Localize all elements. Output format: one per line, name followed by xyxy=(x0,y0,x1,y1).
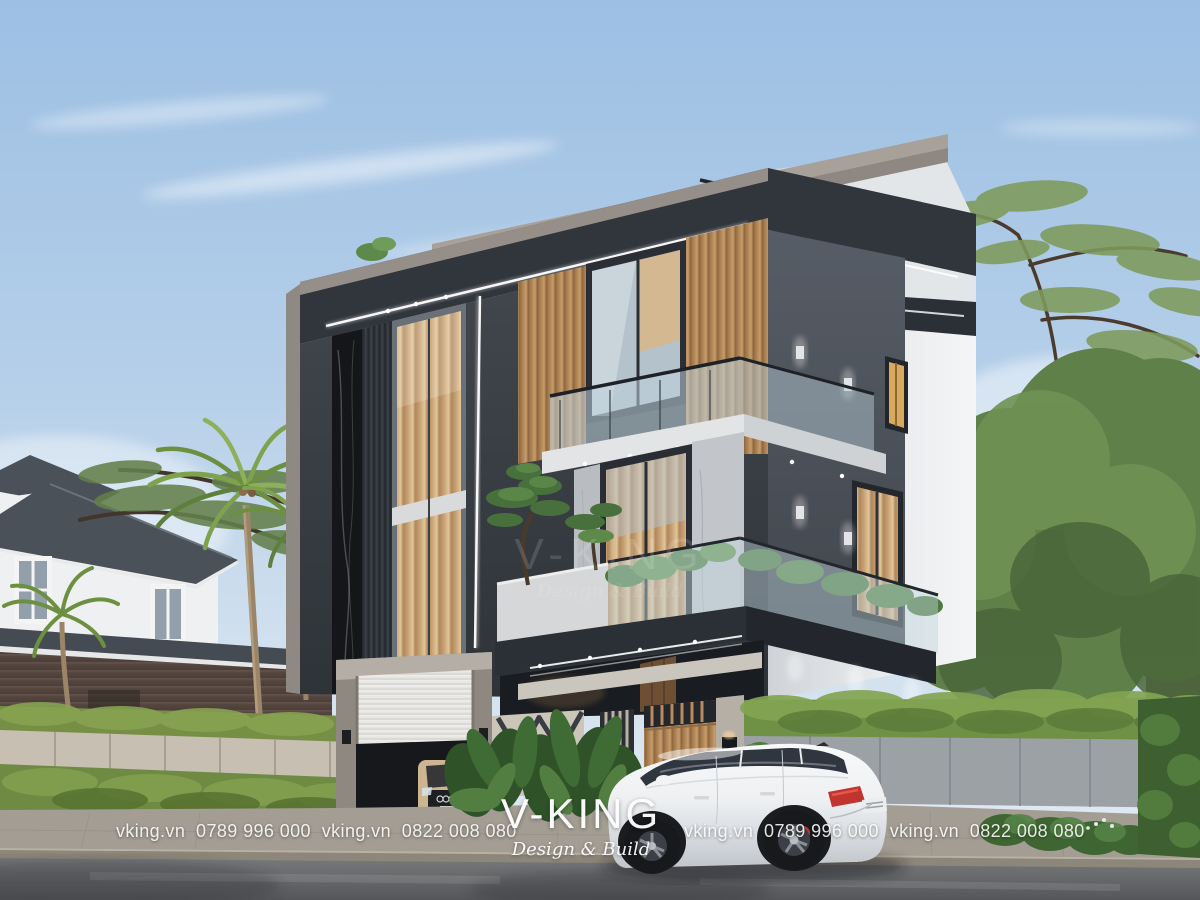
watermark-center-title: V-KING xyxy=(497,530,723,580)
architectural-render: vking.vn 0789 996 000 vking.vn 0822 008 … xyxy=(0,0,1200,900)
vking-logo-subtitle: Design & Build xyxy=(468,839,694,860)
watermark-center: V-KING Design & Build xyxy=(497,530,723,602)
watermark-center-subtitle: Design & Build xyxy=(497,580,723,602)
neighbor-window xyxy=(150,584,186,644)
vertical-led-strip xyxy=(475,296,480,648)
garage-roller-door xyxy=(356,670,474,748)
watermark-bottom-right: vking.vn 0789 996 000 vking.vn 0822 008 … xyxy=(684,821,1085,842)
vking-logo-title: V-KING xyxy=(468,790,694,838)
dark-slat-panel xyxy=(362,321,392,692)
vking-logo: V-KING Design & Build xyxy=(468,790,694,860)
perimeter-fence-left xyxy=(0,702,375,820)
tall-window xyxy=(392,303,466,690)
watermark-bottom-left: vking.vn 0789 996 000 vking.vn 0822 008 … xyxy=(116,821,517,842)
scene-svg xyxy=(0,0,1200,900)
black-marble-column xyxy=(332,329,362,694)
